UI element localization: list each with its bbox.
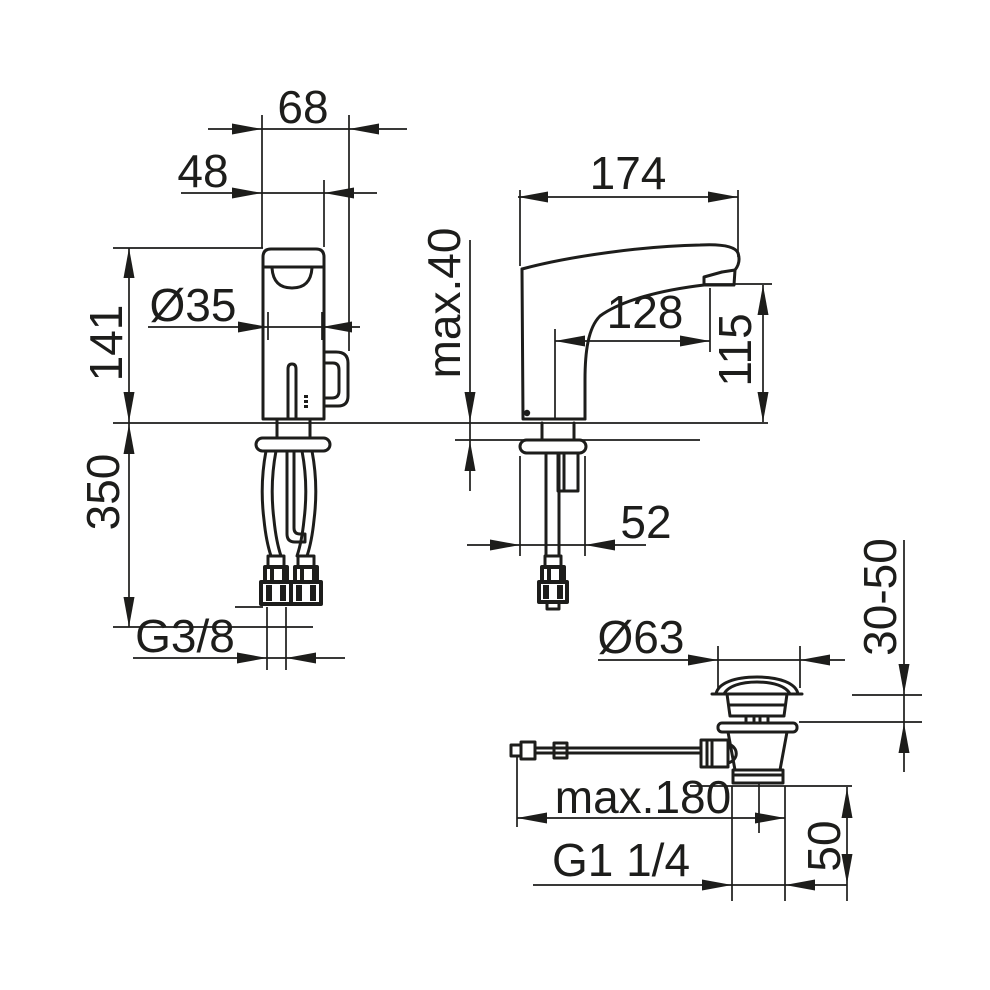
dim-label-141: 141 [80,305,132,382]
sensor-window-dot [524,410,530,416]
thread-label-g38: G3/8 [135,610,235,662]
dim-label-dia35: Ø35 [150,279,237,331]
dim-label-50: 50 [798,820,850,871]
drain-view-dimensions: Ø63 30-50 max.180 G1 1/4 50 [517,538,922,901]
dim-label-48: 48 [177,145,228,197]
faucet-front-view [256,249,348,604]
supply-hose-fitting-left [261,556,291,604]
dim-label-115: 115 [709,313,761,386]
dim-label-max40: max.40 [418,228,470,379]
dim-label-52: 52 [620,496,671,548]
dim-label-max180: max.180 [555,771,731,823]
dim-label-174: 174 [590,147,667,199]
dim-label-128: 128 [607,286,684,338]
supply-hose-fitting-right [291,556,321,604]
product-dimension-image: 68 48 Ø35 141 350 G3/8 [0,0,990,990]
pop-up-pull-rod [511,742,701,759]
dim-label-dia63: Ø63 [598,611,685,663]
dim-label-68: 68 [277,81,328,133]
technical-drawing-canvas: 68 48 Ø35 141 350 G3/8 [0,0,990,990]
pop-up-pivot-housing [701,740,728,767]
thread-label-g114: G1 1/4 [552,834,690,886]
side-view-dimensions: 174 max.40 128 115 52 [418,147,772,556]
dim-label-30-50: 30-50 [854,538,906,656]
supply-hose-fitting-side [539,556,567,609]
dim-label-350: 350 [77,454,129,531]
